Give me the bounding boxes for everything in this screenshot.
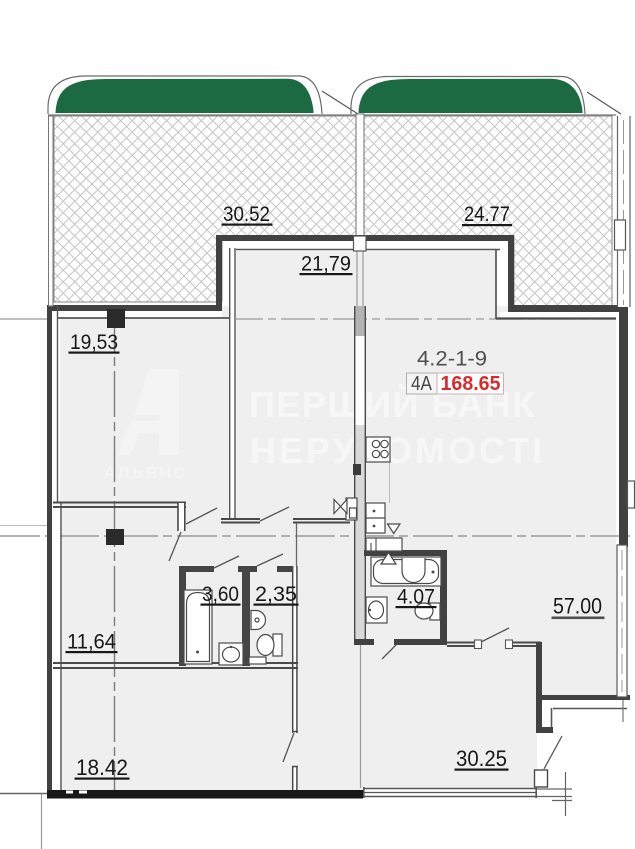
svg-text:3,60: 3,60 [202, 583, 239, 606]
svg-text:4.07: 4.07 [397, 586, 435, 609]
svg-text:4А: 4А [411, 373, 433, 395]
svg-text:АЛЬЯНС: АЛЬЯНС [104, 465, 187, 482]
svg-text:24.77: 24.77 [464, 203, 510, 226]
svg-text:19,53: 19,53 [70, 331, 118, 354]
svg-text:21,79: 21,79 [301, 253, 351, 276]
svg-text:168.65: 168.65 [441, 373, 501, 395]
svg-text:57.00: 57.00 [553, 594, 602, 619]
svg-text:НЕРУХОМОСТІ: НЕРУХОМОСТІ [250, 430, 545, 471]
svg-text:2,35: 2,35 [255, 583, 297, 606]
svg-text:4.2-1-9: 4.2-1-9 [417, 348, 487, 371]
svg-text:30.25: 30.25 [456, 746, 507, 771]
svg-text:18.42: 18.42 [76, 755, 128, 780]
svg-text:30.52: 30.52 [223, 203, 270, 226]
svg-text:11,64: 11,64 [67, 631, 116, 654]
